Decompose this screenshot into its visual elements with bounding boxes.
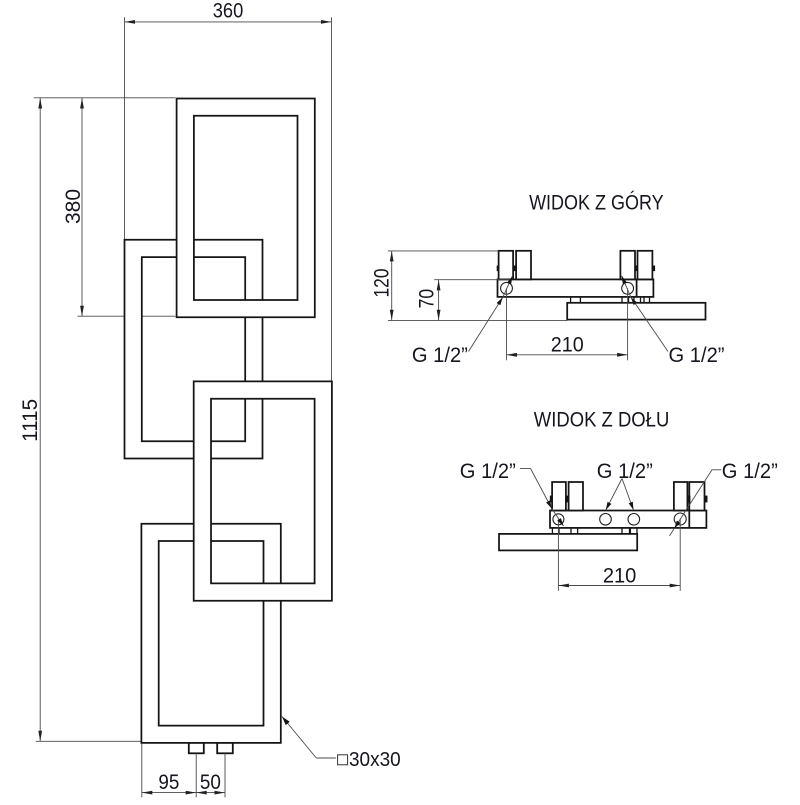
svg-text:30x30: 30x30 [349,749,401,771]
svg-text:G 1/2”: G 1/2” [722,460,778,483]
svg-text:210: 210 [603,565,637,588]
svg-text:50: 50 [200,771,221,794]
svg-text:G 1/2”: G 1/2” [597,460,653,483]
svg-text:70: 70 [416,289,439,309]
svg-text:G 1/2”: G 1/2” [460,460,516,483]
svg-text:210: 210 [551,333,584,356]
svg-text:95: 95 [158,771,179,794]
svg-text:WIDOK Z DOŁU: WIDOK Z DOŁU [534,408,670,431]
svg-text:360: 360 [213,0,244,22]
svg-text:WIDOK Z GÓRY: WIDOK Z GÓRY [529,191,664,214]
svg-text:G 1/2”: G 1/2” [669,344,725,367]
svg-text:120: 120 [370,269,393,298]
svg-text:1115: 1115 [19,399,42,442]
svg-text:380: 380 [62,189,85,224]
svg-text:G 1/2”: G 1/2” [412,344,468,367]
